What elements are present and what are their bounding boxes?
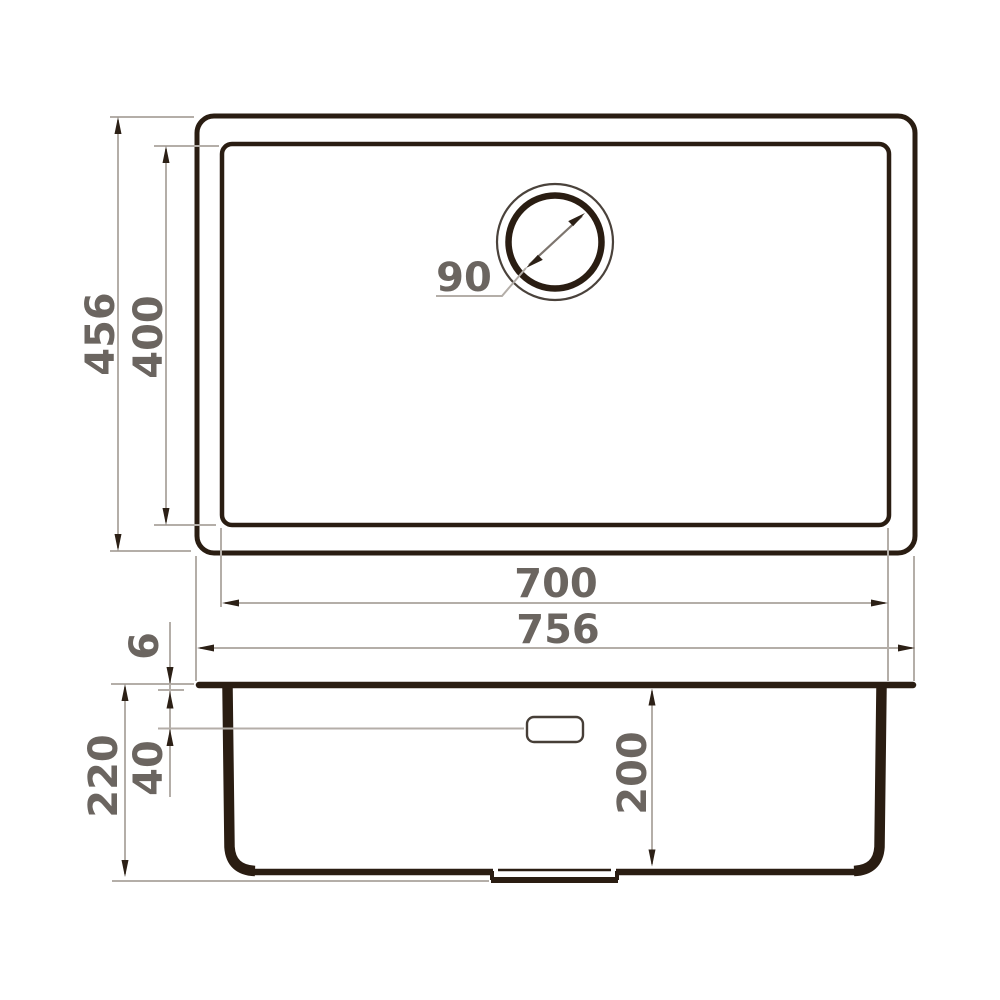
diameter-arrowhead-sw xyxy=(526,255,543,268)
sink-bowl-outline xyxy=(222,144,889,525)
arrowhead-right xyxy=(871,600,888,607)
left-wall xyxy=(228,687,256,871)
side-view xyxy=(199,685,913,880)
arrowhead-up xyxy=(649,689,656,706)
arrowhead-down xyxy=(115,534,122,551)
drain: 90 xyxy=(436,184,613,301)
arrowhead-left xyxy=(197,645,214,652)
dimension-inner-depth: 400 xyxy=(126,146,219,525)
overflow-opening xyxy=(527,717,583,742)
sink-outer-rim-outline xyxy=(197,116,915,553)
technical-drawing: 90 456 400 700 xyxy=(0,0,1000,1000)
right-wall xyxy=(854,687,882,871)
dim-label-overall-height: 220 xyxy=(81,734,127,818)
arrowhead-down xyxy=(122,860,129,877)
dim-label-inner-width: 700 xyxy=(514,561,598,607)
sink-dimension-svg: 90 456 400 700 xyxy=(0,0,1000,1000)
arrowhead-right xyxy=(898,645,915,652)
dim-label-overflow-offset: 40 xyxy=(126,740,172,796)
dim-label-inner-depth: 400 xyxy=(126,295,172,379)
dim-label-drain-diameter: 90 xyxy=(436,255,492,301)
dim-label-bowl-depth: 200 xyxy=(610,731,656,815)
arrowhead-up xyxy=(163,146,170,163)
dim-label-outer-depth: 456 xyxy=(78,292,124,376)
arrowhead-left xyxy=(222,600,239,607)
arrowhead-down xyxy=(649,850,656,867)
diameter-arrowhead-ne xyxy=(568,213,585,226)
side-view-dimensions: 220 6 40 200 xyxy=(81,622,656,881)
dimension-overall-height: 220 xyxy=(81,684,129,877)
dim-label-outer-width: 756 xyxy=(516,607,600,653)
dim-label-rim-thickness: 6 xyxy=(122,632,168,660)
arrowhead-up xyxy=(115,117,122,134)
arrowhead-up xyxy=(167,692,174,709)
dimension-bowl-depth: 200 xyxy=(610,689,656,867)
arrowhead-down xyxy=(167,667,174,684)
arrowhead-down xyxy=(163,508,170,525)
top-view: 90 456 400 700 xyxy=(78,116,915,681)
dimension-rim-and-overflow: 6 40 xyxy=(122,622,174,797)
arrowhead-up xyxy=(122,684,129,701)
